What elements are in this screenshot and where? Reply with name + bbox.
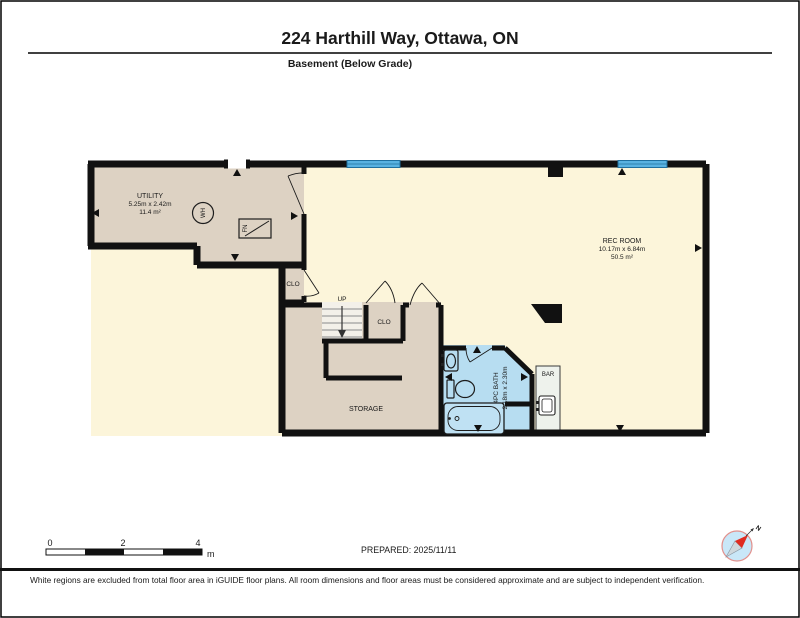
bar-sink-tap-2 [536, 408, 539, 411]
door-jamb-left [224, 160, 228, 169]
rec-room-area: 50.5 m² [611, 254, 634, 261]
water-heater-label: WH [201, 208, 207, 218]
compass-icon: N [722, 524, 762, 561]
utility-dims: 5.25m x 2.42m [129, 201, 172, 208]
wall-pilaster [548, 164, 563, 177]
utility-name: UTILITY [137, 193, 163, 200]
scale-bar-segment [85, 549, 124, 555]
bath-name: 4PC BATH [493, 372, 500, 404]
bar-sink [536, 396, 555, 415]
scale-tick-4: 4 [195, 538, 200, 548]
disclaimer-text: White regions are excluded from total fl… [30, 575, 704, 585]
utility-area: 11.4 m² [139, 209, 161, 216]
furnace-label: FN [243, 225, 249, 233]
sink-tap [441, 354, 444, 357]
floorplan-canvas: 224 Harthill Way, Ottawa, ON Basement (B… [0, 0, 800, 618]
stairs-up-label: UP [337, 296, 346, 303]
closet-a-label: CLO [286, 281, 299, 288]
sink-tap-2 [441, 363, 444, 366]
door-jamb-right [246, 160, 250, 169]
north-label: N [754, 524, 762, 533]
bar-label: BAR [542, 372, 555, 378]
scale-bar-segment [163, 549, 202, 555]
page-title: 224 Harthill Way, Ottawa, ON [281, 28, 518, 48]
floor-fills [91, 164, 706, 436]
rec-room-name: REC ROOM [603, 238, 642, 245]
footer-divider [0, 568, 800, 571]
floorplan-page: 224 Harthill Way, Ottawa, ON Basement (B… [0, 0, 800, 618]
scale-tick-0: 0 [47, 538, 52, 548]
storage-name: STORAGE [349, 406, 383, 413]
door-gap [227, 160, 247, 169]
bath-dims: 2.18m x 2.30m [502, 367, 509, 410]
prepared-date: PREPARED: 2025/11/11 [361, 545, 456, 555]
closet-b-label: CLO [377, 319, 390, 326]
tub-faucet [448, 417, 451, 420]
bar-sink-tap [536, 401, 539, 404]
bathtub [444, 403, 504, 434]
floor-label: Basement (Below Grade) [288, 58, 412, 70]
scale-bar: 0 2 4 m [46, 538, 215, 559]
scale-unit: m [207, 549, 215, 559]
utility-exterior-door [224, 160, 250, 169]
rec-room-dims: 10.17m x 6.84m [599, 246, 646, 253]
scale-tick-2: 2 [120, 538, 125, 548]
